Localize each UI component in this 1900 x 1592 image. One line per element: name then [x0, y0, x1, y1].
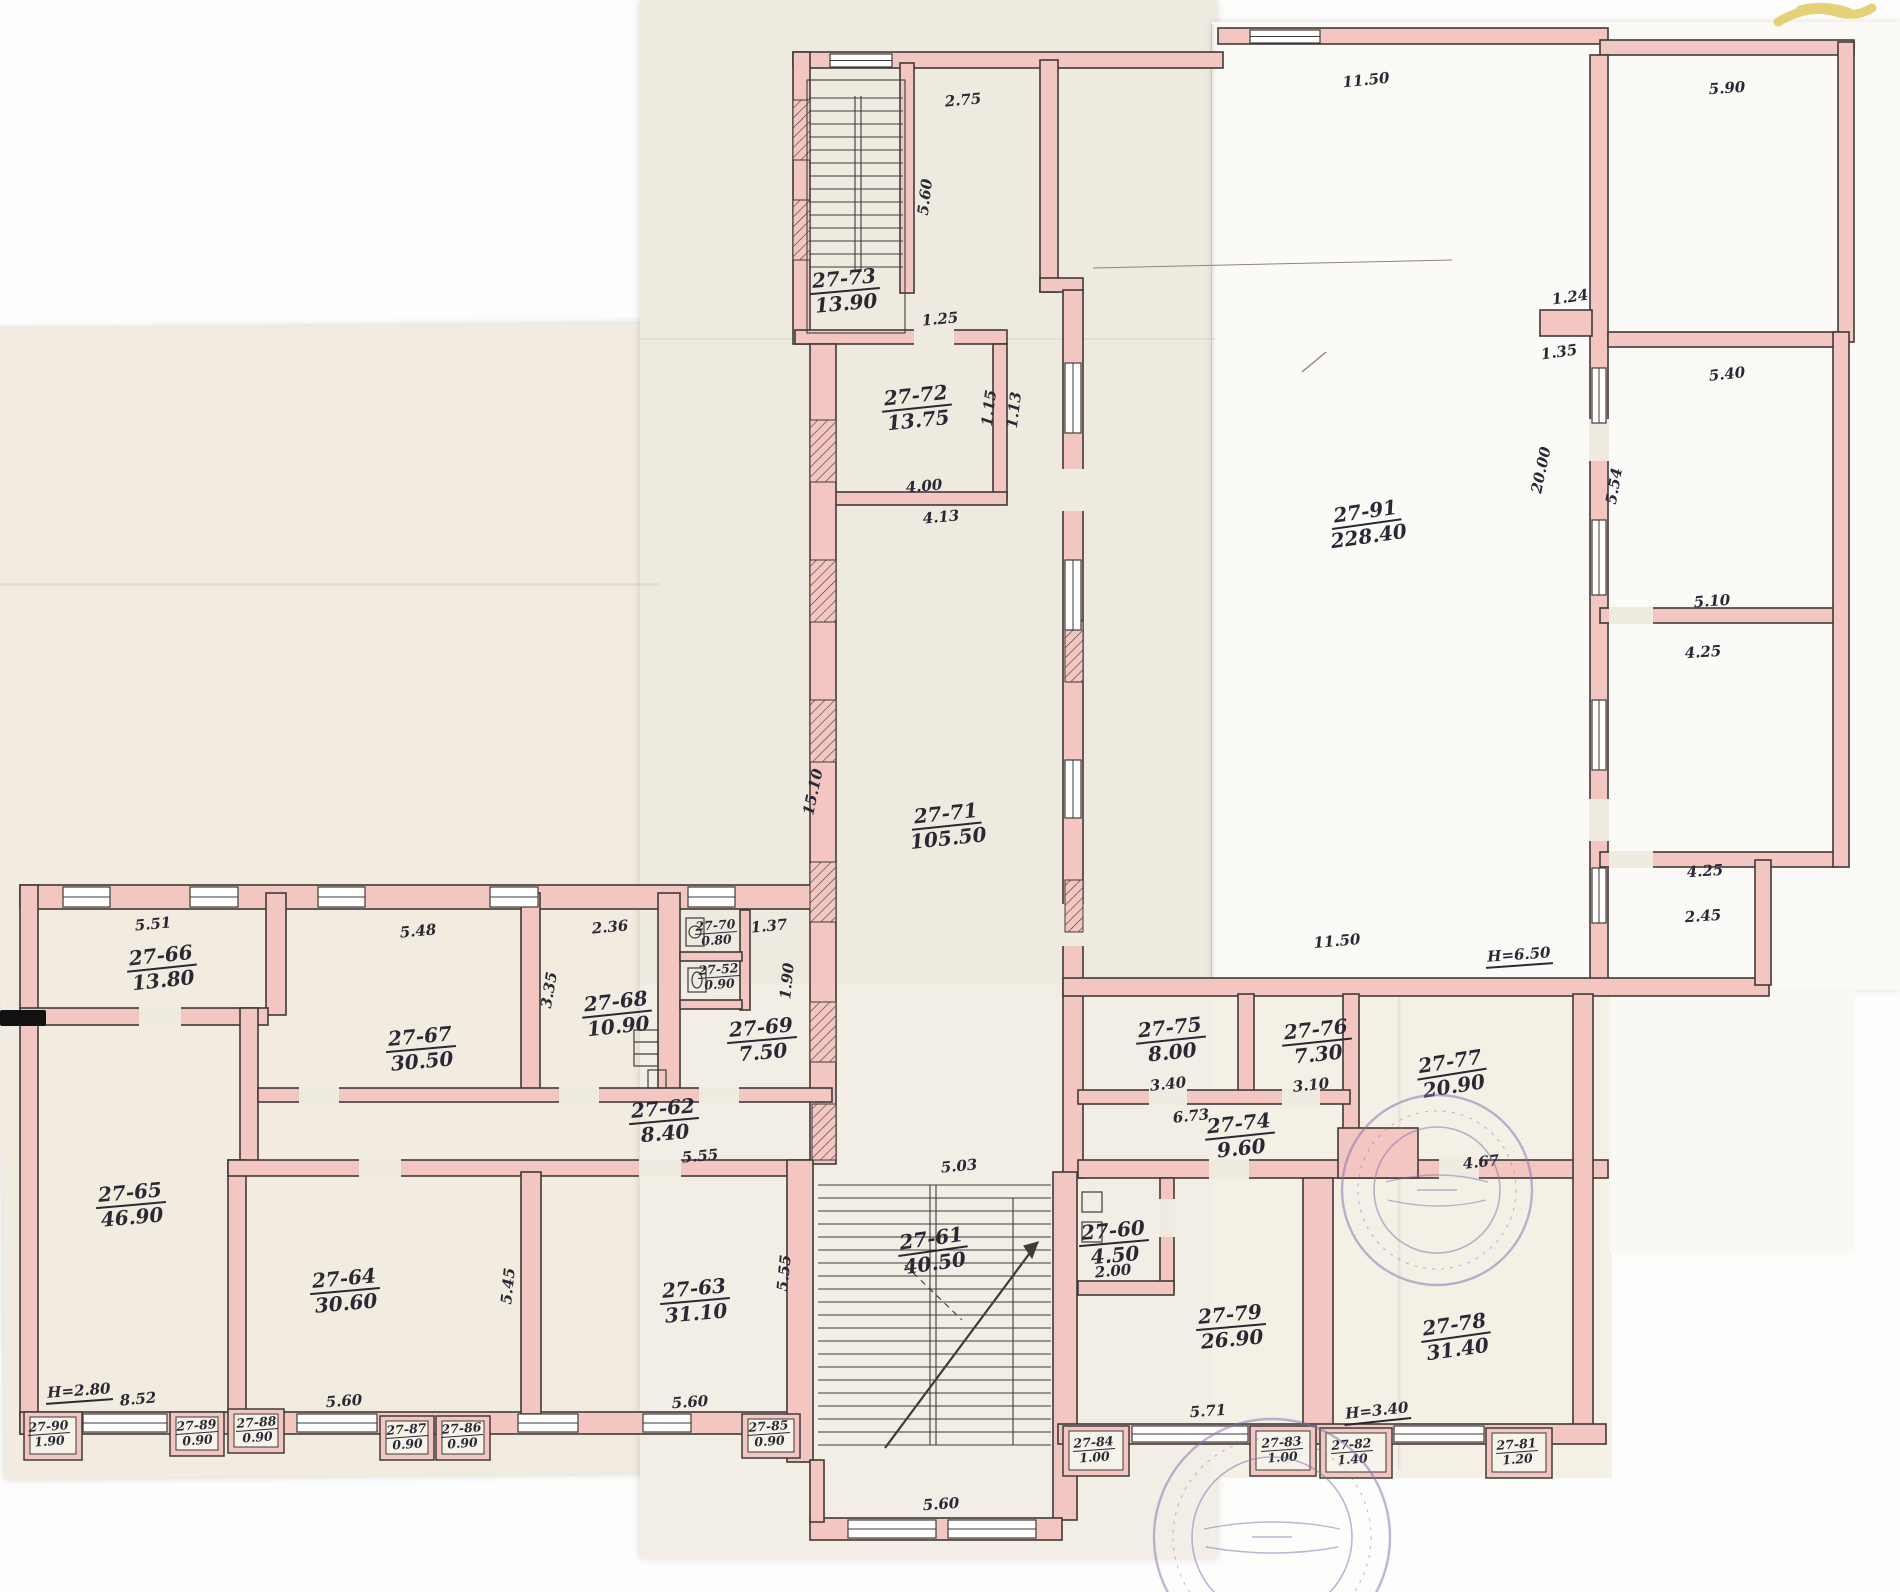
- dimension-label: 5.55: [681, 1145, 719, 1166]
- room-label: 27-520.90: [697, 961, 741, 993]
- dimension-label: 5.90: [1708, 78, 1746, 99]
- room-label: 27-6546.90: [94, 1178, 168, 1232]
- plan-labels: 27-7313.9027-7213.7527-91228.4027-71105.…: [0, 0, 1900, 1592]
- dimension-label: 11.50: [1313, 930, 1361, 952]
- dimension-label: Н=6.50: [1485, 943, 1554, 969]
- room-area: 1.00: [1261, 1449, 1304, 1466]
- room-label: 27-758.00: [1134, 1013, 1209, 1068]
- room-label: 27-811.20: [1495, 1436, 1539, 1468]
- dimension-label: 3.40: [1149, 1073, 1187, 1095]
- room-label: 27-850.90: [747, 1418, 791, 1450]
- room-label: 27-7313.90: [808, 264, 882, 318]
- room-label: 27-7720.90: [1414, 1045, 1491, 1103]
- room-area: 46.90: [96, 1203, 168, 1231]
- dimension-label: 5.60: [914, 178, 936, 216]
- room-label: 27-831.00: [1260, 1434, 1304, 1466]
- dimension-label: 1.37: [750, 915, 788, 936]
- room-area: 30.50: [386, 1047, 458, 1075]
- room-area: 26.90: [1196, 1325, 1268, 1353]
- dimension-label: Н=2.80: [45, 1379, 114, 1405]
- room-label: 27-890.90: [175, 1417, 219, 1449]
- dimension-label: 1.13: [1003, 391, 1025, 429]
- dimension-label: 5.45: [497, 1267, 519, 1305]
- room-label: 27-7213.75: [880, 381, 955, 436]
- dimension-label: 5.60: [922, 1494, 960, 1515]
- room-area: 30.60: [310, 1289, 382, 1317]
- room-area: 8.40: [629, 1119, 701, 1147]
- dimension-label: Н=3.40: [1342, 1398, 1411, 1426]
- black-ink-mark: [0, 1010, 46, 1026]
- room-area: 0.80: [695, 932, 738, 949]
- dimension-label: 4.00: [905, 475, 943, 496]
- room-area: 13.90: [810, 289, 882, 317]
- room-area: 10.90: [582, 1012, 654, 1042]
- dimension-label: 1.24: [1551, 286, 1590, 309]
- room-area: 0.90: [236, 1429, 279, 1446]
- dimension-label: 5.48: [399, 920, 437, 941]
- dimension-label: 2.00: [1094, 1260, 1132, 1281]
- room-label: 27-628.40: [627, 1094, 701, 1148]
- dimension-label: 15.10: [799, 767, 826, 817]
- room-area: 0.90: [176, 1432, 219, 1449]
- dimension-label: 5.55: [773, 1254, 795, 1292]
- room-area: 0.90: [748, 1433, 791, 1450]
- dimension-label: 4.67: [1462, 1151, 1500, 1173]
- room-label: 27-6613.80: [125, 941, 200, 996]
- room-label: 27-91228.40: [1326, 495, 1408, 553]
- room-label: 27-749.60: [1203, 1109, 1278, 1164]
- dimension-label: 5.40: [1708, 363, 1746, 385]
- room-label: 27-860.90: [440, 1420, 484, 1452]
- dimension-label: 4.13: [922, 506, 960, 527]
- dimension-label: 4.25: [1686, 861, 1724, 882]
- room-label: 27-6331.10: [658, 1274, 732, 1328]
- room-area: 8.00: [1136, 1038, 1208, 1068]
- dimension-label: 2.75: [944, 89, 982, 110]
- room-area: 7.30: [1282, 1040, 1354, 1070]
- room-area: 9.60: [1205, 1134, 1277, 1164]
- dimension-label: 1.35: [1540, 341, 1579, 364]
- room-label: 27-700.80: [694, 917, 738, 949]
- dimension-label: 4.25: [1684, 642, 1722, 663]
- room-label: 27-901.90: [27, 1418, 71, 1450]
- dimension-label: 2.36: [591, 916, 629, 937]
- room-label: 27-71105.50: [906, 798, 987, 854]
- room-label: 27-841.00: [1072, 1434, 1116, 1466]
- dimension-label: 5.60: [671, 1392, 709, 1413]
- room-area: 1.90: [28, 1433, 71, 1450]
- dimension-label: 5.10: [1693, 591, 1731, 612]
- room-label: 27-6730.50: [384, 1022, 458, 1076]
- dimension-label: 5.54: [1602, 466, 1626, 505]
- dimension-label: 5.03: [940, 1155, 978, 1176]
- dimension-label: 8.52: [119, 1388, 157, 1409]
- room-area: 0.90: [386, 1436, 429, 1453]
- room-area: 7.50: [727, 1038, 799, 1066]
- dimension-label: 1.90: [776, 962, 798, 1000]
- dimension-label: 20.00: [1527, 445, 1554, 495]
- room-area: 0.90: [698, 976, 741, 993]
- room-label: 27-6140.50: [895, 1222, 971, 1279]
- room-label: 27-870.90: [385, 1421, 429, 1453]
- room-label: 27-6430.60: [308, 1264, 382, 1318]
- room-area: 1.20: [1496, 1451, 1539, 1468]
- room-label: 27-7926.90: [1194, 1300, 1268, 1354]
- dimension-label: 2.45: [1684, 906, 1722, 927]
- room-label: 27-767.30: [1280, 1015, 1355, 1070]
- room-area: 1.40: [1331, 1451, 1374, 1468]
- room-area: 0.90: [441, 1435, 484, 1452]
- room-label: 27-821.40: [1330, 1436, 1374, 1468]
- room-area: 13.75: [882, 406, 954, 436]
- floor-plan-scan: 27-7313.9027-7213.7527-91228.4027-71105.…: [0, 0, 1900, 1592]
- dimension-label: 1.15: [978, 389, 1000, 427]
- room-area: 1.00: [1073, 1449, 1116, 1466]
- dimension-label: 5.51: [134, 913, 172, 934]
- dimension-label: 3.35: [537, 970, 561, 1009]
- dimension-label: 5.71: [1189, 1401, 1227, 1422]
- dimension-label: 5.60: [325, 1391, 363, 1412]
- dimension-label: 1.25: [921, 308, 959, 329]
- room-area: 13.80: [127, 966, 199, 996]
- room-label: 27-697.50: [725, 1013, 799, 1067]
- room-label: 27-880.90: [235, 1414, 279, 1446]
- dimension-label: 11.50: [1342, 69, 1391, 92]
- room-label: 27-7831.40: [1418, 1308, 1494, 1365]
- dimension-label: 6.73: [1172, 1105, 1210, 1127]
- room-area: 31.10: [660, 1299, 732, 1327]
- room-label: 27-6810.90: [580, 987, 655, 1042]
- dimension-label: 3.10: [1292, 1074, 1330, 1096]
